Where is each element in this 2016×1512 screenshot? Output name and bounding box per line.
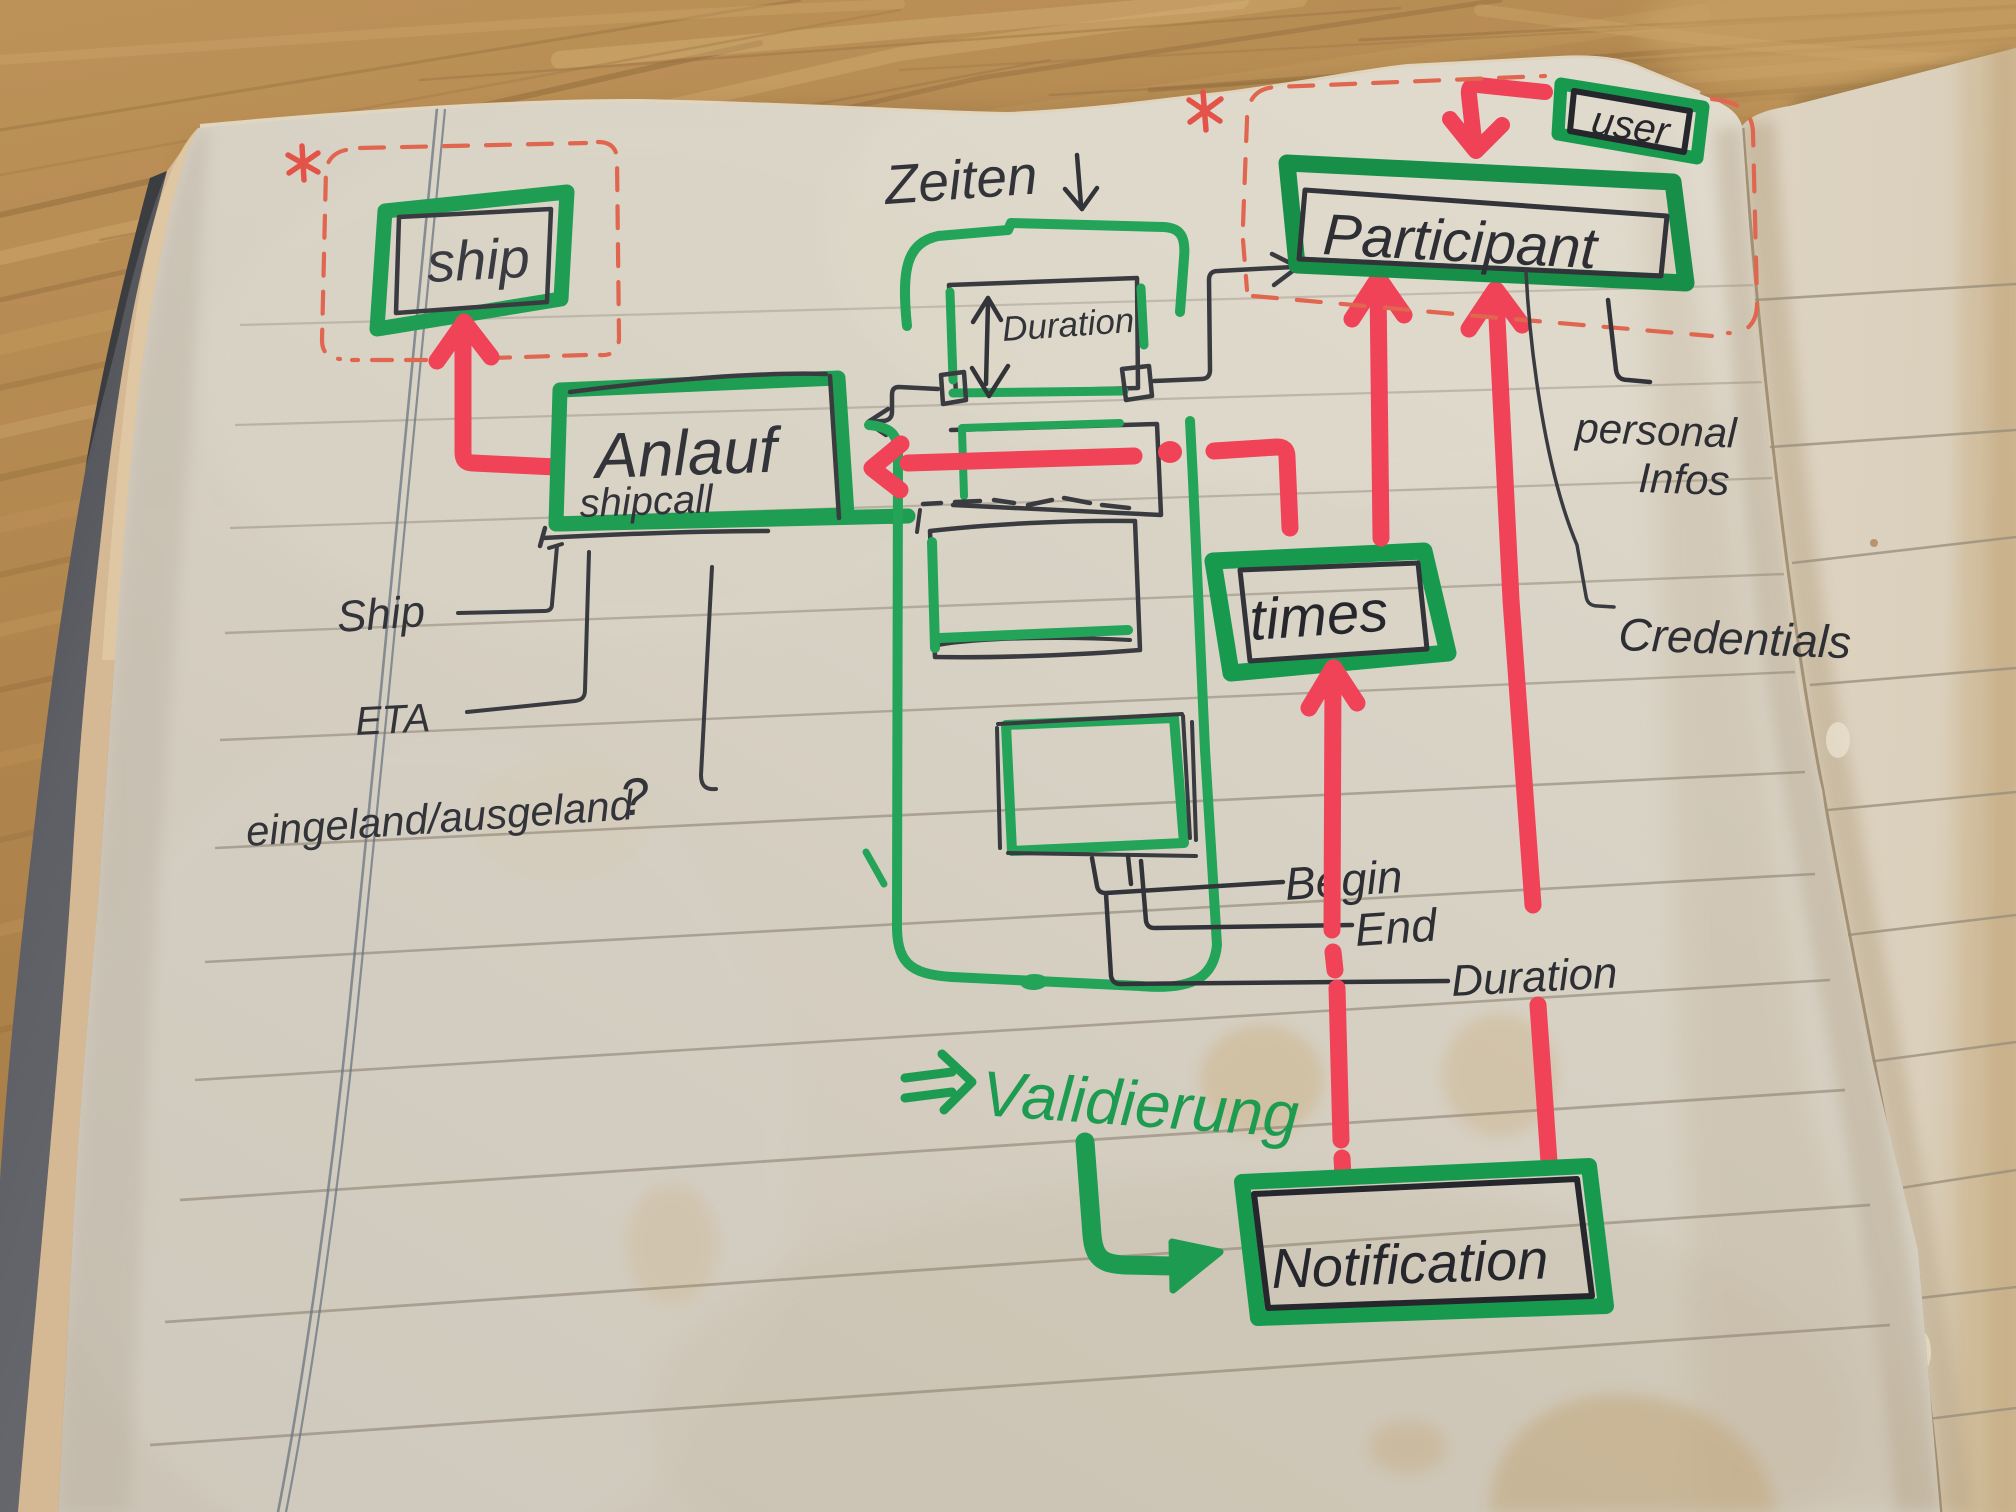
svg-text:End: End xyxy=(1353,898,1440,956)
svg-text:Ship: Ship xyxy=(335,587,426,642)
svg-text:ship: ship xyxy=(425,226,531,294)
svg-text:Zeiten: Zeiten xyxy=(881,143,1040,216)
svg-text:Notification: Notification xyxy=(1270,1227,1549,1300)
svg-text:shipcall: shipcall xyxy=(579,477,715,526)
svg-text:ETA: ETA xyxy=(354,696,431,744)
svg-text:Infos: Infos xyxy=(1638,454,1731,504)
svg-text:times: times xyxy=(1247,578,1390,653)
svg-text:Duration: Duration xyxy=(1450,948,1619,1006)
svg-text:personal: personal xyxy=(1573,404,1739,457)
svg-text:Credentials: Credentials xyxy=(1618,608,1852,668)
